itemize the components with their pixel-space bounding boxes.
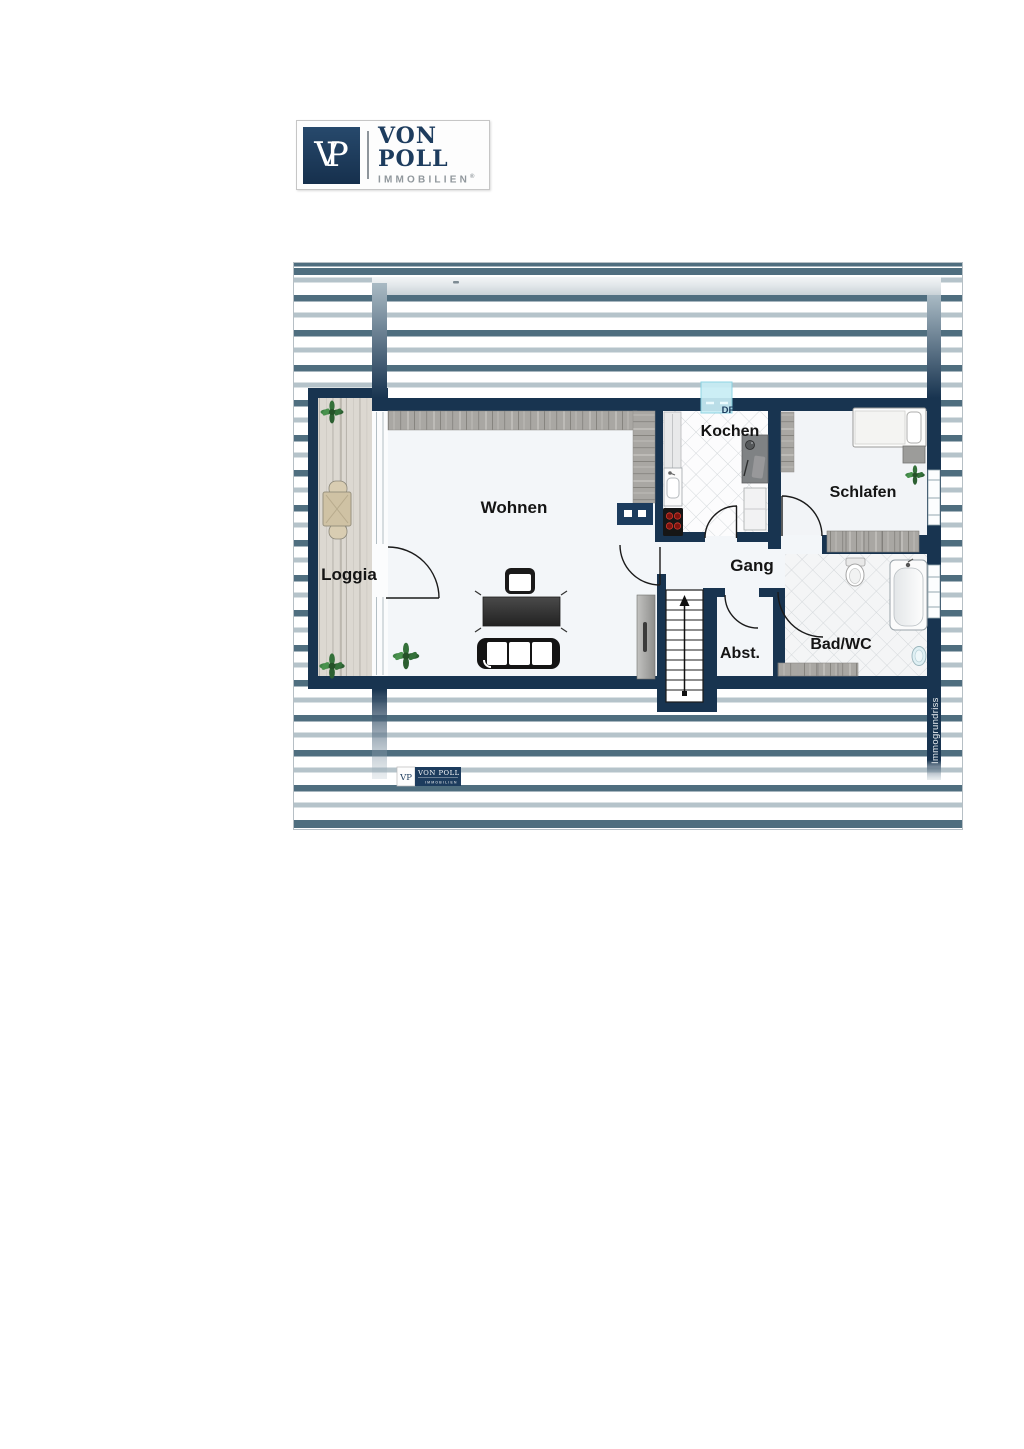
label-kochen: Kochen [701,423,760,440]
skylight: DF [701,382,735,416]
registered-mark: ® [470,174,474,180]
schlafen-wardrobe-bottom [827,531,919,552]
brand-name: VON POLL [378,125,483,171]
bed [853,408,926,447]
wall-kochen-left [655,411,663,542]
watermark: Immogrundriss [930,697,941,764]
brand-subtitle: IMMOBILIEN® [378,174,483,185]
page: V P VON POLL IMMOBILIEN® [0,0,1024,1449]
sofa [477,638,560,669]
label-abstellraum: Abst. [720,645,760,662]
wall-schlafen-corner [768,527,781,549]
kitchen-sink [664,468,682,506]
wardrobe-top [388,411,637,430]
gable-wall-left-bottom [372,689,387,779]
staircase [666,590,703,702]
label-bad: Bad/WC [810,636,872,653]
skylight-label: DF [722,405,735,416]
gable-wall-left-top [372,283,387,398]
vp-monogram: V P [303,127,360,184]
wall-kochen-schlafen [768,411,781,535]
ridge-mark [453,281,459,284]
wall-bottom [308,676,941,689]
stove [663,508,683,536]
vonpoll-logo: V P VON POLL IMMOBILIEN® [296,120,490,190]
floorplan-image: DF [293,262,963,830]
bathtub [890,559,927,630]
washbasin [912,647,926,666]
label-wohnen: Wohnen [481,498,548,517]
wall-stair-right [703,588,717,712]
footer-monogram: VP [399,773,412,783]
schlafen-wardrobe-left [781,412,794,472]
wall-stair-bottom [657,702,717,712]
logo-text: VON POLL IMMOBILIEN® [378,125,483,186]
dining-table [475,591,567,632]
nightstand [903,446,925,463]
label-schlafen: Schlafen [830,484,897,501]
wall-stair-left [657,574,666,712]
label-loggia: Loggia [321,565,377,584]
wall-gang-abst-right [759,588,785,597]
toilet [846,558,865,586]
wardrobe-side [633,411,655,503]
label-gang: Gang [730,556,773,575]
monogram-p: P [326,135,349,175]
gable-wall-right-top [927,295,941,398]
sideboard [617,503,653,525]
roof-ridge-band [372,277,941,295]
footer-logo: VP VON POLL IMMOBILIEN [397,767,461,786]
logo-divider [367,131,369,179]
armchair [505,568,535,594]
loggia-wall-left [308,388,318,689]
kitchen-counter-right [742,435,768,483]
footer-brand-subtitle: IMMOBILIEN [425,781,458,785]
footer-brand-name: VON POLL [417,769,460,777]
loggia-glazing [372,411,388,676]
bath-vanity [778,663,858,676]
